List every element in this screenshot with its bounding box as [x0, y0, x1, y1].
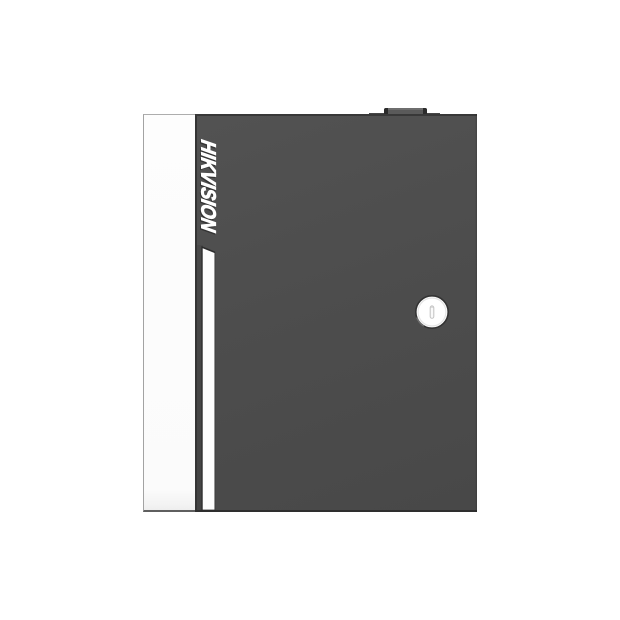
- svg-text:HIKVISION: HIKVISION: [197, 138, 220, 234]
